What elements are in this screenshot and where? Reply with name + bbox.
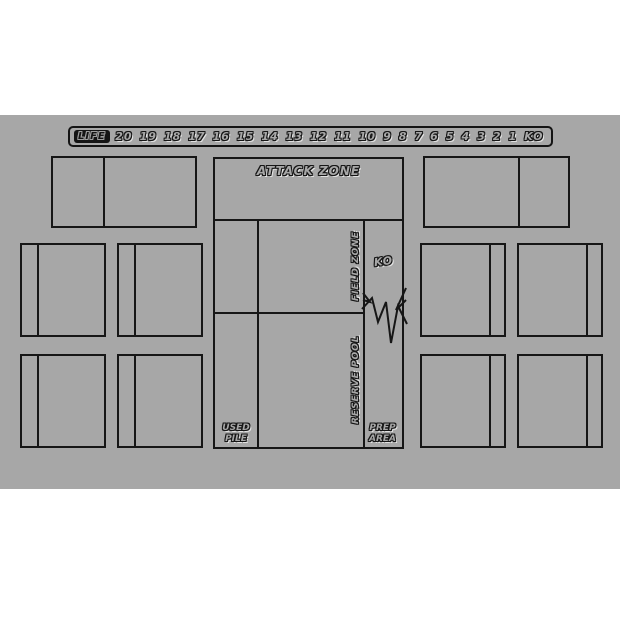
card-zone-left-row1-col2[interactable] [117,243,203,337]
field-zone-label: FIELD ZONE [351,221,361,311]
life-value[interactable]: 16 [213,130,230,143]
life-value[interactable]: 5 [446,130,455,143]
zone-divider [586,356,588,446]
zone-divider [103,158,105,226]
life-value[interactable]: KO [524,130,543,143]
life-value[interactable]: 13 [286,130,303,143]
life-value[interactable]: 9 [383,130,392,143]
life-value[interactable]: 6 [430,130,439,143]
life-counter-bar[interactable]: LIFE 2019181716151413121110987654321KO [68,126,553,147]
playmat-canvas: LIFE 2019181716151413121110987654321KO [0,0,620,620]
prep-area-line2: AREA [363,434,402,444]
playmat: LIFE 2019181716151413121110987654321KO [0,115,620,489]
used-pile-line2: PILE [215,434,257,444]
card-zone-top-left[interactable] [51,156,197,228]
life-value[interactable]: 1 [509,130,518,143]
card-zone-left-row2-col1[interactable] [20,354,106,448]
card-zone-right-row1-col2[interactable] [517,243,603,337]
zone-divider [586,245,588,335]
card-zone-right-row2-col1[interactable] [420,354,506,448]
life-value[interactable]: 7 [414,130,423,143]
zone-divider [489,245,491,335]
card-zone-top-right[interactable] [423,156,570,228]
ko-crash-icon [361,287,408,349]
zone-divider [37,245,39,335]
life-value[interactable]: 11 [334,130,351,143]
attack-zone-label: ATTACK ZONE [215,164,402,178]
reserve-pool-label: RESERVE POOL [351,315,361,445]
zone-divider [489,356,491,446]
life-value[interactable]: 4 [462,130,471,143]
life-value[interactable]: 17 [188,130,205,143]
life-value[interactable]: 12 [310,130,327,143]
attack-zone-bottom-line [215,219,402,221]
zone-divider [518,158,520,226]
card-zone-left-row2-col2[interactable] [117,354,203,448]
field-reserve-divider-line [215,312,365,314]
used-pile-column-line [257,219,259,447]
life-value[interactable]: 15 [237,130,254,143]
prep-area-line1: PREP [363,423,402,433]
used-pile-line1: USED [215,423,257,433]
center-board: ATTACK ZONE FIELD ZONE RESERVE POOL KO U… [213,157,404,449]
card-zone-right-row1-col1[interactable] [420,243,506,337]
card-zone-left-row1-col1[interactable] [20,243,106,337]
life-value[interactable]: 18 [164,130,181,143]
card-zone-right-row2-col2[interactable] [517,354,603,448]
life-value[interactable]: 19 [140,130,157,143]
used-pile-label: USED PILE [215,423,257,444]
life-value[interactable]: 2 [493,130,502,143]
zone-divider [134,356,136,446]
life-value[interactable]: 8 [399,130,408,143]
life-label: LIFE [74,130,110,143]
prep-area-label: PREP AREA [363,423,402,444]
zone-divider [134,245,136,335]
ko-zone-label: KO [364,252,402,270]
zone-divider [37,356,39,446]
life-value[interactable]: 10 [359,130,376,143]
life-values: 2019181716151413121110987654321KO [112,130,547,143]
life-value[interactable]: 3 [477,130,486,143]
life-value[interactable]: 14 [261,130,278,143]
life-value[interactable]: 20 [115,130,132,143]
